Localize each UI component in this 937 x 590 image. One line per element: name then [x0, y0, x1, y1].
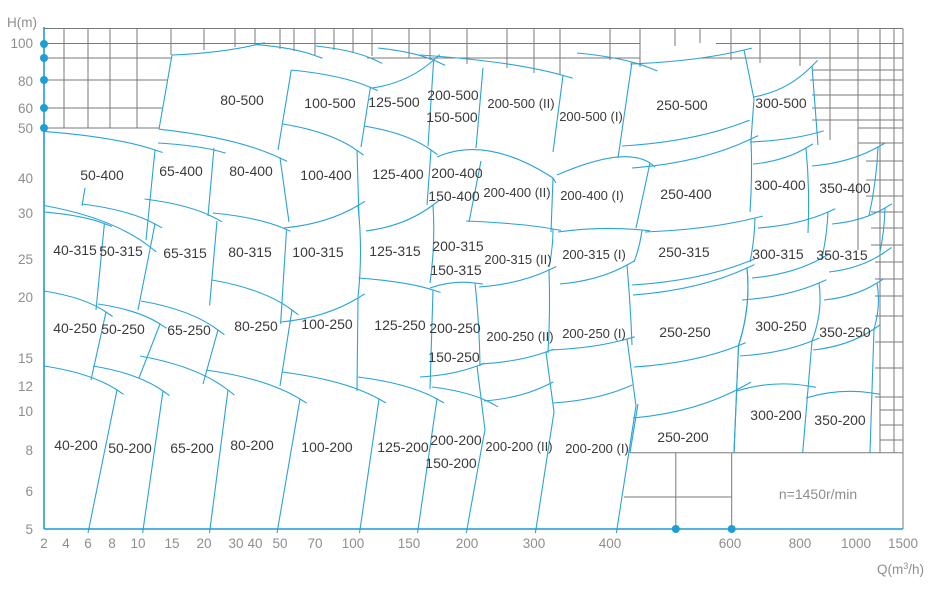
svg-text:4: 4 — [62, 536, 70, 551]
svg-text:200-250 (I): 200-250 (I) — [562, 326, 626, 341]
svg-text:250-315: 250-315 — [658, 244, 710, 260]
svg-text:350-250: 350-250 — [819, 324, 871, 340]
svg-text:n=1450r/min: n=1450r/min — [779, 486, 857, 502]
svg-text:30: 30 — [228, 536, 243, 551]
svg-text:60: 60 — [18, 101, 33, 116]
svg-text:600: 600 — [719, 536, 742, 551]
svg-text:100-400: 100-400 — [300, 167, 352, 183]
svg-text:40: 40 — [247, 536, 262, 551]
svg-text:2: 2 — [40, 536, 48, 551]
svg-text:65-315: 65-315 — [163, 245, 207, 261]
svg-text:200-400 (II): 200-400 (II) — [483, 185, 550, 200]
svg-text:200-400: 200-400 — [431, 165, 483, 181]
svg-text:150-315: 150-315 — [430, 262, 482, 278]
svg-text:300: 300 — [523, 536, 546, 551]
svg-text:350-200: 350-200 — [814, 412, 866, 428]
svg-text:200-250 (II): 200-250 (II) — [486, 329, 553, 344]
svg-text:100-250: 100-250 — [301, 316, 353, 332]
svg-text:100: 100 — [10, 36, 33, 51]
svg-text:1500: 1500 — [888, 536, 918, 551]
svg-text:150-200: 150-200 — [425, 455, 477, 471]
svg-text:200-200: 200-200 — [430, 432, 482, 448]
svg-text:125-400: 125-400 — [372, 166, 424, 182]
svg-text:300-200: 300-200 — [750, 407, 802, 423]
svg-text:1000: 1000 — [841, 536, 871, 551]
svg-text:125-200: 125-200 — [377, 439, 429, 455]
svg-text:30: 30 — [18, 206, 33, 221]
svg-text:350-400: 350-400 — [819, 180, 871, 196]
svg-text:80-400: 80-400 — [229, 163, 273, 179]
svg-text:15: 15 — [18, 351, 33, 366]
svg-text:125-250: 125-250 — [374, 317, 426, 333]
svg-text:H(m): H(m) — [7, 15, 37, 30]
svg-text:200-315 (I): 200-315 (I) — [562, 247, 626, 262]
svg-text:40-315: 40-315 — [53, 242, 97, 258]
svg-text:8: 8 — [25, 443, 33, 458]
svg-text:300-250: 300-250 — [755, 318, 807, 334]
svg-text:10: 10 — [18, 404, 33, 419]
svg-text:400: 400 — [599, 536, 622, 551]
svg-text:250-400: 250-400 — [660, 186, 712, 202]
svg-text:800: 800 — [789, 536, 812, 551]
svg-text:50-315: 50-315 — [99, 243, 143, 259]
svg-text:50-200: 50-200 — [108, 440, 152, 456]
svg-text:10: 10 — [130, 536, 145, 551]
svg-text:6: 6 — [25, 484, 33, 499]
svg-text:300-400: 300-400 — [754, 177, 806, 193]
svg-text:200-500 (I): 200-500 (I) — [559, 109, 623, 124]
svg-text:65-250: 65-250 — [167, 322, 211, 338]
svg-text:200-315: 200-315 — [432, 238, 484, 254]
svg-text:200: 200 — [456, 536, 479, 551]
svg-text:70: 70 — [307, 536, 322, 551]
svg-text:6: 6 — [84, 536, 92, 551]
svg-text:125-500: 125-500 — [368, 94, 420, 110]
svg-text:300-315: 300-315 — [752, 246, 804, 262]
svg-text:12: 12 — [18, 379, 33, 394]
svg-text:150-500: 150-500 — [426, 109, 478, 125]
svg-text:15: 15 — [164, 536, 179, 551]
svg-text:80-250: 80-250 — [234, 318, 278, 334]
svg-text:80-500: 80-500 — [220, 92, 264, 108]
svg-text:250-500: 250-500 — [656, 97, 708, 113]
svg-text:5: 5 — [25, 522, 33, 537]
svg-text:200-400 (I): 200-400 (I) — [560, 188, 624, 203]
svg-text:250-250: 250-250 — [659, 324, 711, 340]
svg-text:350-315: 350-315 — [816, 247, 868, 263]
svg-text:200-315 (II): 200-315 (II) — [484, 252, 551, 267]
svg-text:80-315: 80-315 — [228, 244, 272, 260]
svg-text:200-250: 200-250 — [429, 320, 481, 336]
svg-text:100-200: 100-200 — [301, 439, 353, 455]
svg-text:50-400: 50-400 — [80, 167, 124, 183]
svg-text:150-250: 150-250 — [428, 349, 480, 365]
svg-text:20: 20 — [196, 536, 211, 551]
svg-text:40-250: 40-250 — [53, 320, 97, 336]
svg-text:300-500: 300-500 — [755, 95, 807, 111]
svg-text:200-500: 200-500 — [427, 87, 479, 103]
svg-text:20: 20 — [18, 290, 33, 305]
svg-text:100-500: 100-500 — [304, 95, 356, 111]
svg-text:125-315: 125-315 — [369, 243, 421, 259]
svg-text:50-250: 50-250 — [101, 321, 145, 337]
svg-text:80-200: 80-200 — [230, 437, 274, 453]
svg-text:200-200 (I): 200-200 (I) — [565, 441, 629, 456]
svg-text:50: 50 — [18, 121, 33, 136]
svg-text:40-200: 40-200 — [54, 437, 98, 453]
svg-text:50: 50 — [272, 536, 287, 551]
svg-text:8: 8 — [108, 536, 116, 551]
svg-text:100-315: 100-315 — [292, 244, 344, 260]
svg-text:80: 80 — [18, 74, 33, 89]
svg-text:Q(m3/h): Q(m3/h) — [877, 561, 924, 577]
svg-text:150-400: 150-400 — [428, 188, 480, 204]
svg-text:200-500 (II): 200-500 (II) — [487, 96, 554, 111]
svg-text:100: 100 — [342, 536, 365, 551]
svg-text:40: 40 — [18, 171, 33, 186]
svg-text:250-200: 250-200 — [657, 429, 709, 445]
svg-text:200-200 (II): 200-200 (II) — [485, 439, 552, 454]
svg-text:25: 25 — [18, 252, 33, 267]
svg-text:65-200: 65-200 — [170, 440, 214, 456]
svg-text:150: 150 — [398, 536, 421, 551]
svg-text:65-400: 65-400 — [159, 163, 203, 179]
